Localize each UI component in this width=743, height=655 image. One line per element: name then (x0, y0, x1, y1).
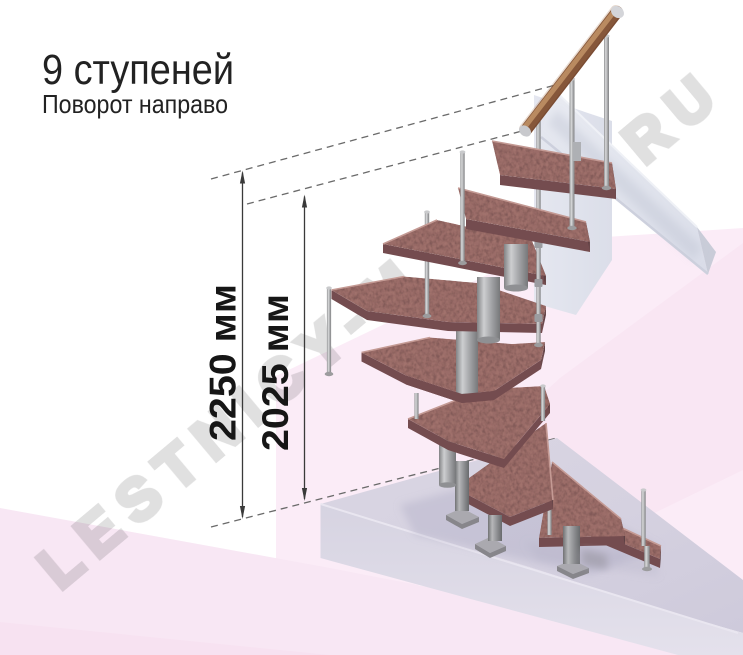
svg-text:2025 мм: 2025 мм (255, 294, 296, 451)
svg-text:2250 мм: 2250 мм (203, 284, 244, 441)
svg-text:9 ступеней: 9 ступеней (42, 46, 234, 94)
svg-text:Поворот направо: Поворот направо (42, 89, 228, 119)
